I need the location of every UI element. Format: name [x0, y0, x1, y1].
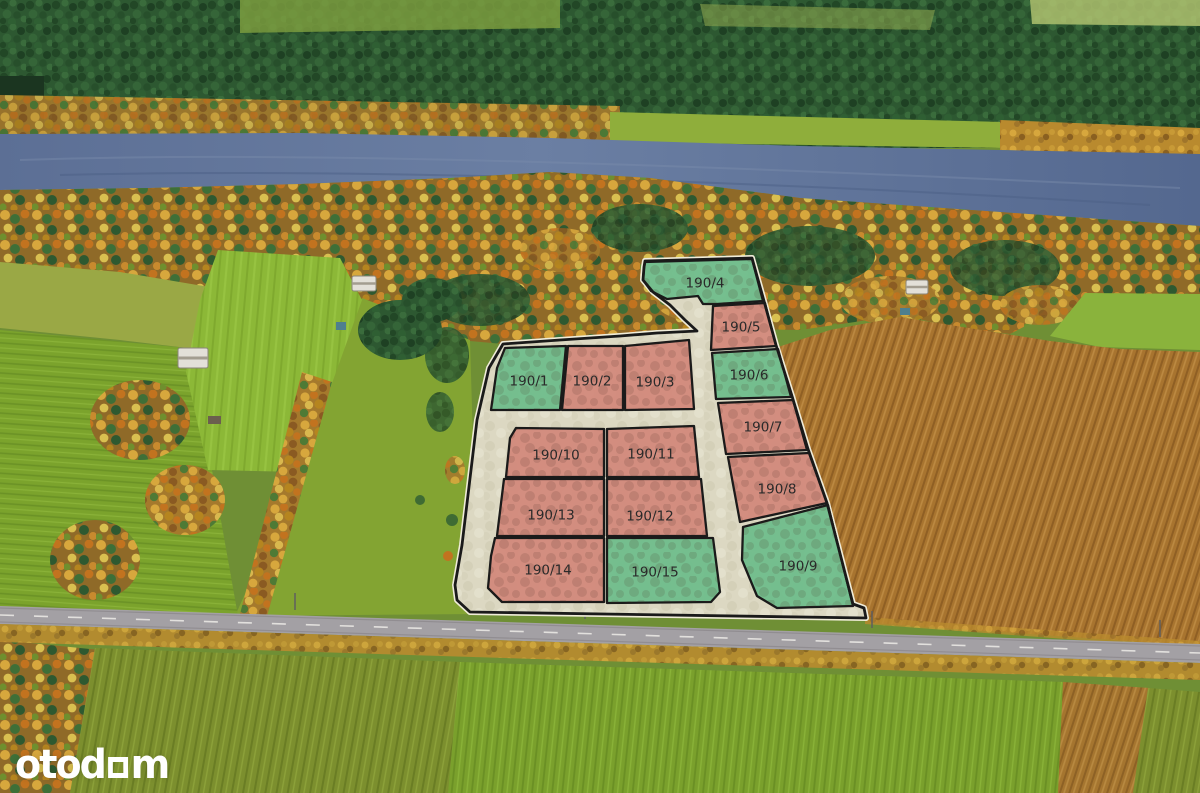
logo-text-before: otod [15, 742, 105, 788]
plot-label-190-8: 190/8 [758, 482, 797, 498]
shed [900, 308, 910, 315]
otodom-logo: otodm [15, 745, 168, 785]
shed [336, 322, 346, 330]
aerial-listing-photo: 190/1190/2190/3190/4190/5190/6190/7190/8… [0, 0, 1200, 793]
plot-label-190-6: 190/6 [730, 368, 769, 384]
plot-label-190-5: 190/5 [722, 320, 761, 336]
top-forest [0, 0, 1200, 156]
house [178, 348, 208, 368]
plot-label-190-11: 190/11 [627, 447, 675, 463]
house [906, 280, 928, 294]
plot-texture-190-12 [607, 479, 707, 536]
plot-label-190-10: 190/10 [532, 448, 580, 464]
plot-label-190-4: 190/4 [686, 276, 725, 292]
house [352, 276, 376, 291]
logo-square-glyph [108, 757, 128, 778]
plot-label-190-7: 190/7 [744, 420, 783, 436]
plot-label-190-9: 190/9 [779, 559, 818, 575]
plot-label-190-15: 190/15 [631, 565, 679, 581]
plot-label-190-13: 190/13 [527, 508, 575, 524]
logo-text-after: m [131, 742, 169, 788]
plot-label-190-3: 190/3 [636, 375, 675, 391]
plot-label-190-14: 190/14 [524, 563, 572, 579]
plot-label-190-12: 190/12 [626, 509, 674, 525]
plot-label-190-1: 190/1 [510, 374, 549, 390]
aerial-scene: 190/1190/2190/3190/4190/5190/6190/7190/8… [0, 0, 1200, 793]
shed [208, 416, 221, 424]
plot-label-190-2: 190/2 [573, 374, 612, 390]
